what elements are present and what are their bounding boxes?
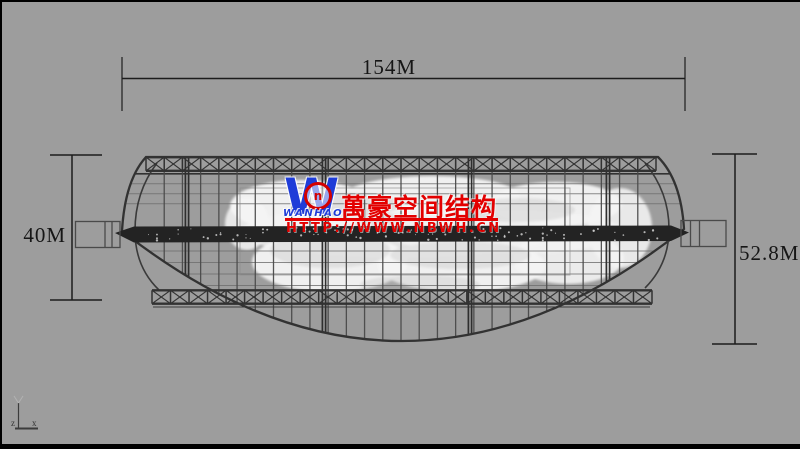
frame-edge-left (0, 0, 2, 449)
right-dimension-label: 52.8M (739, 241, 799, 266)
frame-edge-top (0, 0, 800, 2)
axis-x-label: x (32, 418, 37, 428)
left-dimension-label: 40M (12, 223, 66, 248)
axis-z-label: z (11, 418, 15, 428)
frame-edge-bottom (0, 444, 800, 449)
top-dimension-label: 154M (339, 55, 439, 80)
central-spine-truss (115, 226, 689, 243)
cad-viewport[interactable]: 154M 40M 52.8M z x W n WANHAO 萬豪空间结构 HTT… (0, 0, 800, 449)
